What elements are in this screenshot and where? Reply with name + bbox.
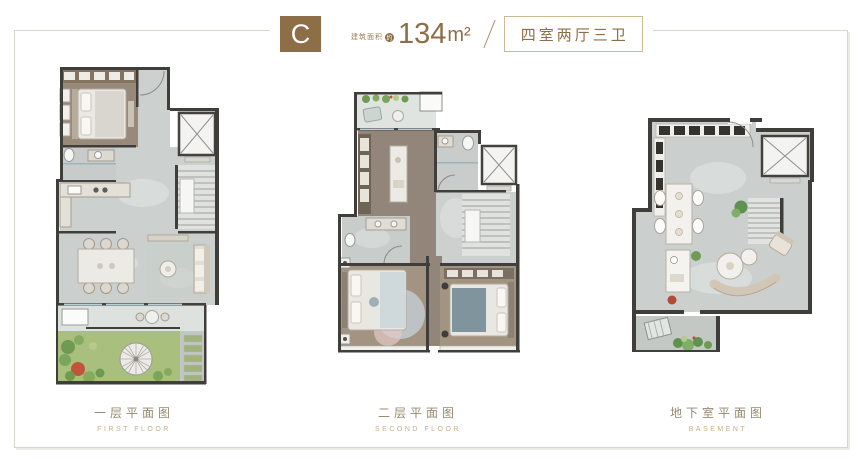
red-accent-decor <box>668 296 677 305</box>
wardrobe-icon <box>358 134 371 214</box>
parasol-icon <box>120 343 152 375</box>
divider-slash <box>483 20 495 48</box>
header: C 建筑面积 约 134 m² 四室两厅三卫 <box>270 14 653 54</box>
stairs-icon <box>462 194 510 256</box>
area-unit: m² <box>447 21 470 49</box>
area-group: 建筑面积 约 134 m² <box>351 19 471 49</box>
caption-cn: 一层平面图 <box>48 404 220 421</box>
wardrobe-icon <box>60 69 138 83</box>
cabinet-icon <box>666 250 690 292</box>
basement-caption: 地下室平面图 BASEMENT <box>620 404 816 433</box>
balcony-table-icon <box>393 111 404 122</box>
caption-en: FIRST FLOOR <box>48 426 220 433</box>
dining-table-icon <box>78 239 134 294</box>
elevator-icon <box>482 146 516 191</box>
desk-icon <box>390 146 407 202</box>
unit-type-badge: C <box>280 16 321 52</box>
balcony-chair-icon <box>363 107 382 123</box>
unit-type-label: C <box>291 19 311 50</box>
stairs-icon <box>175 165 216 229</box>
approx-circle-icon: 约 <box>385 33 394 42</box>
first-floor-plan-image <box>48 63 220 389</box>
bed-icon-2 <box>442 268 515 338</box>
ac-platform <box>420 92 442 111</box>
room-layout-badge: 四室两厅三卫 <box>504 16 643 52</box>
caption-cn: 地下室平面图 <box>620 404 816 421</box>
second-floor-plan-image <box>332 88 524 354</box>
elevator-icon <box>762 136 808 183</box>
caption-cn: 二层平面图 <box>322 404 514 421</box>
bed-icon <box>72 89 134 139</box>
storage-box-icon <box>62 309 88 325</box>
caption-en: SECOND FLOOR <box>322 426 514 433</box>
caption-en: BASEMENT <box>620 426 816 433</box>
sofa-icon <box>146 235 210 297</box>
floorplan-page: C 建筑面积 约 134 m² 四室两厅三卫 <box>0 0 865 466</box>
basement-plan-image <box>628 108 824 352</box>
area-label: 建筑面积 <box>351 32 383 42</box>
area-number: 134 <box>398 19 446 49</box>
plant-icon <box>691 251 701 261</box>
elevator-icon <box>179 113 215 162</box>
second-floor-caption: 二层平面图 SECOND FLOOR <box>322 404 514 433</box>
entry-door-gap <box>728 119 752 124</box>
first-floor-caption: 一层平面图 FIRST FLOOR <box>48 404 220 433</box>
